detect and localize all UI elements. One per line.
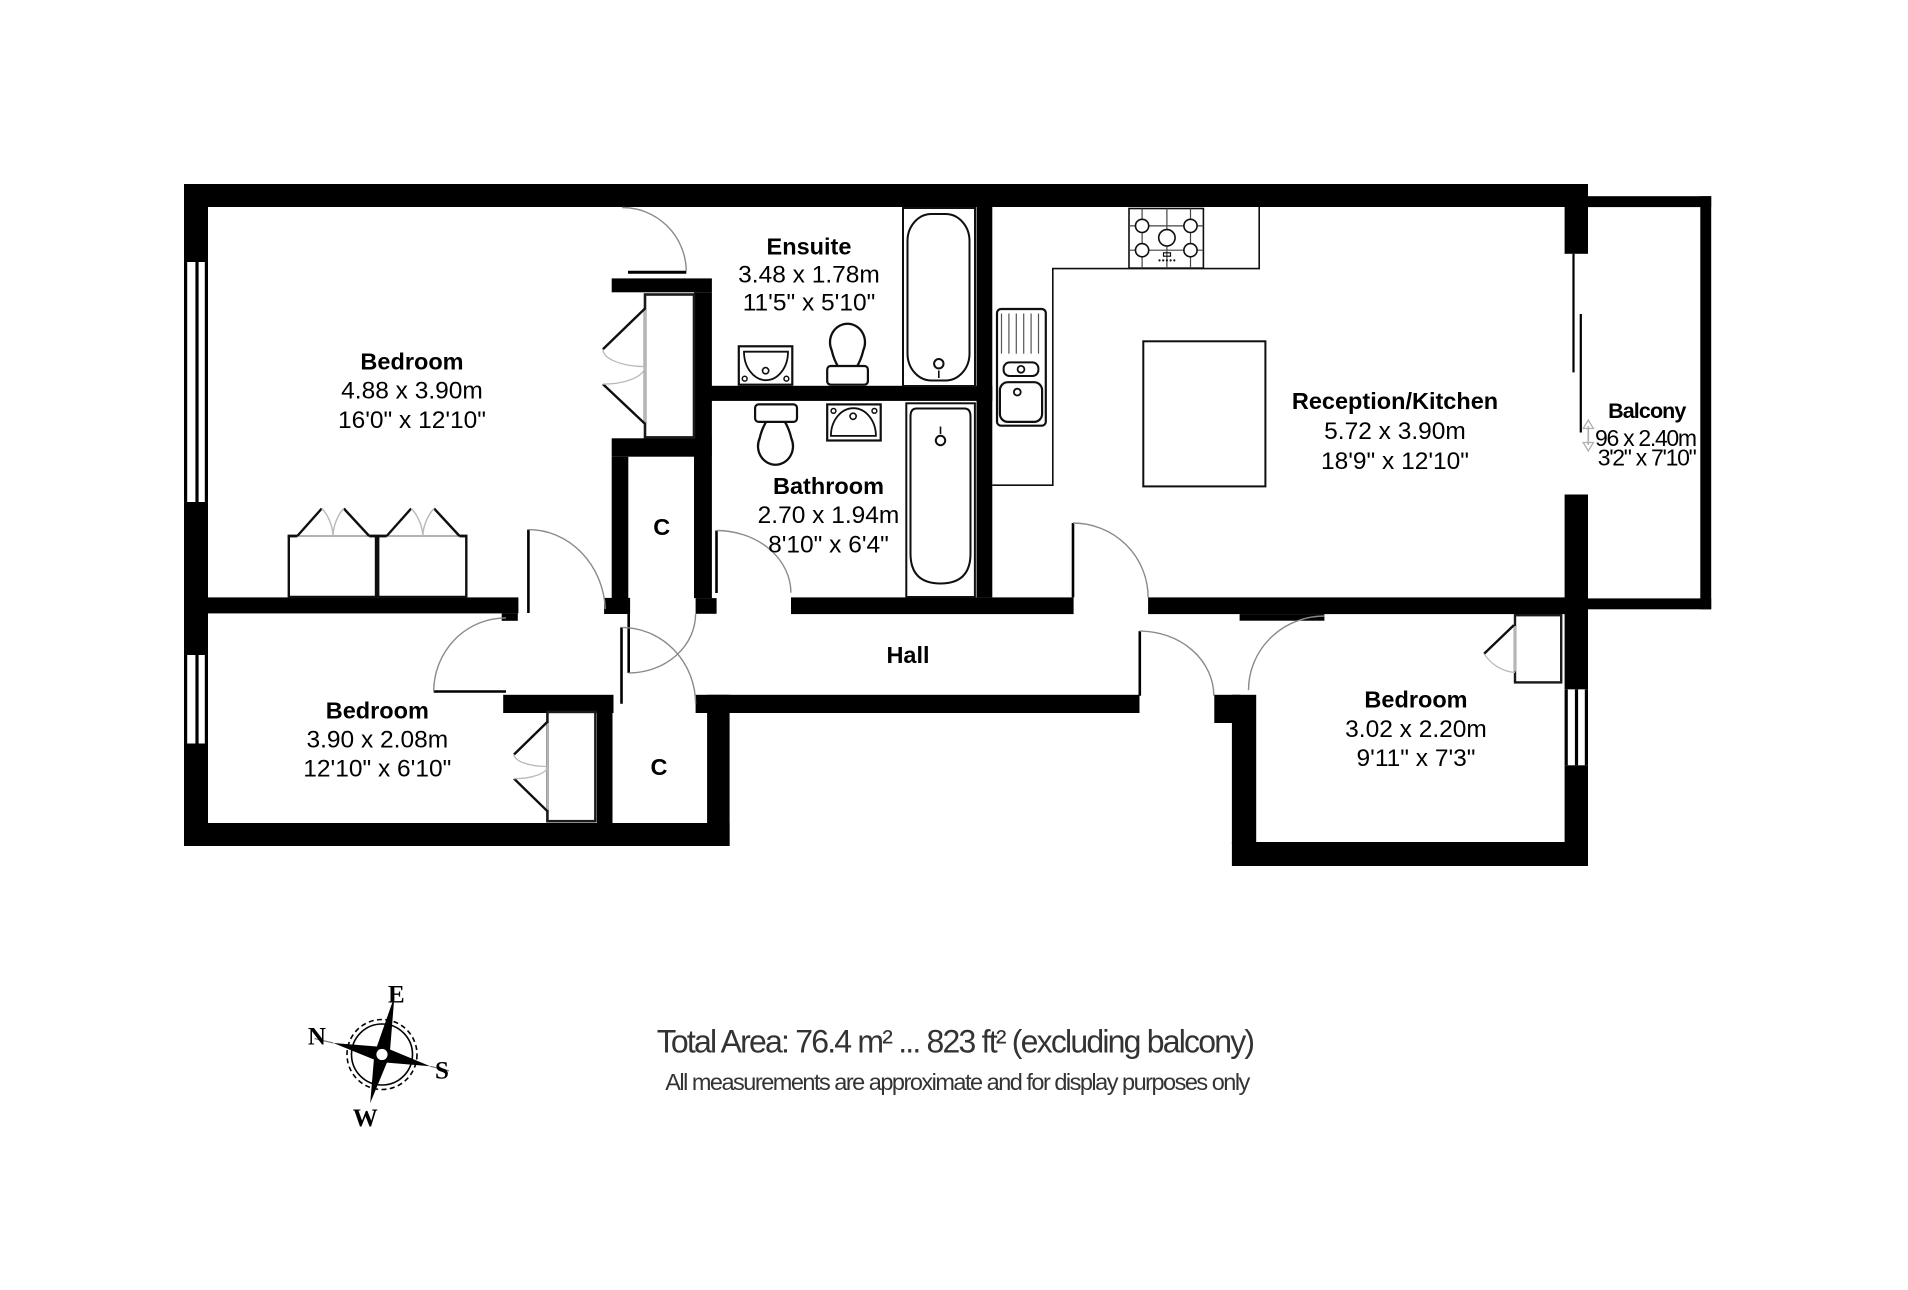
svg-text:W: W (353, 1105, 378, 1132)
svg-text:11'5" x 5'10": 11'5" x 5'10" (743, 289, 876, 316)
svg-text:Bathroom: Bathroom (773, 473, 884, 499)
svg-text:All measurements are approxima: All measurements are approximate and for… (665, 1069, 1250, 1095)
svg-text:3.90 x 2.08m: 3.90 x 2.08m (306, 727, 448, 754)
svg-text:Bedroom: Bedroom (360, 349, 463, 375)
svg-text:5.72 x 3.90m: 5.72 x 3.90m (1324, 418, 1466, 445)
svg-text:E: E (388, 981, 405, 1008)
svg-text:Balcony: Balcony (1608, 399, 1686, 423)
svg-text:Reception/Kitchen: Reception/Kitchen (1292, 388, 1498, 414)
svg-text:18'9" x 12'10": 18'9" x 12'10" (1321, 448, 1469, 475)
svg-text:S: S (435, 1058, 449, 1085)
svg-text:12'10" x 6'10": 12'10" x 6'10" (303, 756, 451, 783)
svg-text:3'2" x 7'10": 3'2" x 7'10" (1598, 445, 1697, 471)
svg-text:C: C (653, 514, 670, 540)
svg-text:C: C (651, 754, 668, 780)
svg-text:4.88 x 3.90m: 4.88 x 3.90m (341, 378, 483, 405)
svg-text:2.70 x 1.94m: 2.70 x 1.94m (758, 502, 900, 529)
svg-text:3.48 x 1.78m: 3.48 x 1.78m (738, 261, 880, 288)
svg-text:8'10" x 6'4": 8'10" x 6'4" (768, 531, 889, 558)
svg-text:Bedroom: Bedroom (326, 697, 429, 723)
svg-text:3.02 x 2.20m: 3.02 x 2.20m (1345, 716, 1487, 743)
svg-text:Hall: Hall (886, 642, 929, 668)
svg-text:9'11" x 7'3": 9'11" x 7'3" (1357, 745, 1476, 772)
svg-text:N: N (308, 1024, 326, 1051)
svg-text:16'0" x 12'10": 16'0" x 12'10" (338, 407, 486, 434)
svg-text:Ensuite: Ensuite (767, 233, 852, 259)
svg-text:Bedroom: Bedroom (1364, 687, 1467, 713)
svg-text:Total Area: 76.4 m² ... 823 ft: Total Area: 76.4 m² ... 823 ft² (excludi… (657, 1024, 1254, 1060)
